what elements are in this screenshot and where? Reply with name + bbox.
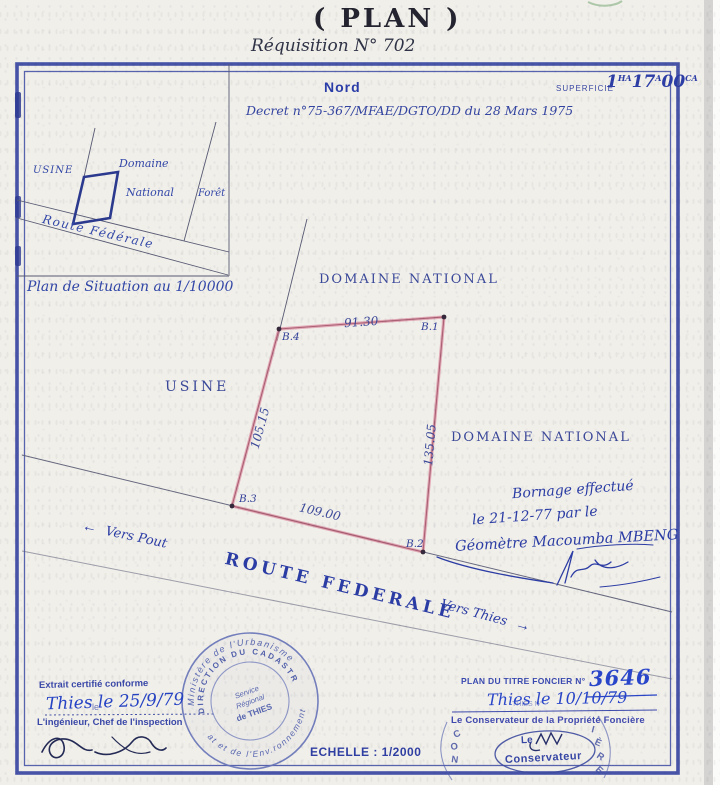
inset-national-label: National bbox=[126, 187, 174, 198]
north-label: Nord bbox=[324, 80, 361, 94]
scanned-cadastral-plan: { "page": { "title": "( PLAN )", "requis… bbox=[0, 0, 720, 785]
route-lower-edge bbox=[22, 551, 672, 679]
decree-line: Decret n°75-367/MFAE/DGTO/DD du 28 Mars … bbox=[246, 105, 573, 118]
page-title: ( PLAN ) bbox=[313, 6, 461, 32]
printed-le: le bbox=[92, 703, 99, 712]
certification-date-handwritten: Thies le 25/9/79 bbox=[46, 692, 185, 714]
superficie-ca-unit: CA bbox=[685, 73, 698, 83]
scale-label: ECHELLE : 1/2000 bbox=[310, 746, 421, 758]
ring-letter-r: R bbox=[594, 750, 606, 763]
corner-b2-label: B.2 bbox=[406, 539, 424, 550]
oval-stamp-le: Le bbox=[521, 736, 533, 747]
arrow-left-icon: ← bbox=[81, 517, 99, 537]
inset-domaine-label: Domaine bbox=[119, 158, 169, 169]
extrait-certifie-label: Extrait certifié conforme bbox=[39, 679, 148, 690]
ring-letter-n: N bbox=[451, 754, 459, 766]
requisition-number: Réquisition N° 702 bbox=[251, 38, 415, 55]
green-smudge bbox=[588, 1, 622, 6]
ring-letter-c: C bbox=[452, 728, 463, 741]
scanner-edge-shadow bbox=[704, 0, 713, 785]
plan-frame bbox=[15, 64, 678, 773]
inset-foret-label: Forêt bbox=[198, 189, 225, 199]
titre-foncier-label: PLAN DU TITRE FONCIER N° bbox=[461, 677, 585, 686]
scanner-edge-white bbox=[713, 0, 720, 785]
conservateur-title-line: Le Conservateur de la Propriété Foncière bbox=[451, 716, 645, 726]
corner-b3-label: B.3 bbox=[239, 494, 257, 505]
superficie-ca: 00 bbox=[662, 72, 686, 92]
superficie-value: 1HA17A00CA bbox=[606, 74, 698, 91]
superficie-a: 17 bbox=[632, 72, 656, 92]
titre-foncier-number: 3646 bbox=[589, 666, 652, 689]
corner-b1-label: B.1 bbox=[421, 322, 439, 333]
inset-caption: Plan de Situation au 1/10000 bbox=[27, 280, 233, 294]
titre-date-handwritten: Thies le 10/10/79 bbox=[487, 690, 628, 708]
length-top-91-30: 91.30 bbox=[344, 315, 379, 329]
domaine-national-top-label: DOMAINE NATIONAL bbox=[319, 273, 499, 286]
engineer-signature bbox=[42, 737, 166, 758]
cadastre-stamp: Ministère de l'Urbanisme at et de l'Env.… bbox=[163, 614, 337, 785]
inset-parcel-outline bbox=[73, 172, 118, 224]
inset-usine-label: USINE bbox=[33, 166, 73, 176]
engineer-title-line: L'ingénieur, Chef de l'inspection bbox=[37, 718, 182, 728]
corner-b4-label: B.4 bbox=[282, 332, 300, 343]
superficie-ha-unit: HA bbox=[618, 73, 632, 83]
domaine-national-right-label: DOMAINE NATIONAL bbox=[451, 431, 631, 444]
ring-letter-o: O bbox=[450, 741, 459, 753]
superficie-ha: 1 bbox=[606, 72, 618, 92]
usine-label: USINE bbox=[165, 380, 229, 394]
conservateur-signature bbox=[530, 733, 562, 751]
